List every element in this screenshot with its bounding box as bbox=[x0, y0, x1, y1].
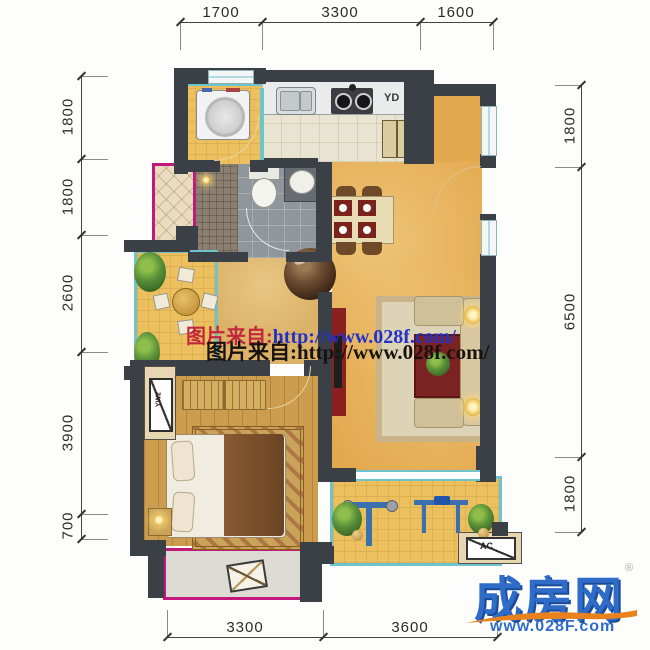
dimension-label: 1700 bbox=[191, 4, 251, 21]
dimension-label: 2600 bbox=[60, 263, 77, 323]
wall-segment bbox=[480, 84, 496, 106]
wall-segment bbox=[318, 546, 334, 564]
wall-segment bbox=[318, 468, 356, 482]
washbasin bbox=[289, 170, 315, 194]
sliding-door bbox=[356, 470, 480, 481]
wall-segment bbox=[260, 70, 408, 82]
wall-segment bbox=[176, 160, 220, 172]
dim-line-right bbox=[581, 85, 582, 532]
balcony-pot-ball bbox=[352, 530, 363, 541]
dimension-label: 1800 bbox=[562, 464, 579, 524]
wall-segment bbox=[124, 240, 190, 252]
logo-url-text: www.028F.com bbox=[490, 618, 615, 636]
dim-extension bbox=[180, 22, 181, 50]
floorplan-image: YD bbox=[0, 0, 650, 650]
stove-burner-right bbox=[355, 93, 372, 110]
dining-chair bbox=[336, 242, 356, 255]
wall-segment bbox=[174, 68, 188, 174]
exercise-bench-leg bbox=[422, 505, 426, 533]
kitchen-sink-basin2 bbox=[300, 91, 312, 111]
dim-line-top bbox=[180, 22, 493, 23]
dimension-label: 1800 bbox=[562, 96, 579, 156]
stool bbox=[153, 293, 171, 311]
toilet-bowl bbox=[251, 178, 277, 208]
washer-control-red bbox=[226, 88, 240, 92]
dimension-label: 6500 bbox=[562, 282, 579, 342]
wall-segment bbox=[260, 158, 318, 168]
stool bbox=[177, 267, 195, 284]
exercise-bench-seat bbox=[434, 496, 450, 505]
dim-line-left bbox=[81, 76, 82, 539]
dining-chair bbox=[362, 242, 382, 255]
dimension-label: 3300 bbox=[215, 619, 275, 636]
kitchen-sink-basin bbox=[280, 91, 300, 111]
window bbox=[481, 220, 497, 256]
plate bbox=[339, 204, 347, 212]
nightstand-lamp-bottom bbox=[153, 514, 165, 526]
dimension-label: 1800 bbox=[60, 167, 77, 227]
dimension-label: 1800 bbox=[60, 87, 77, 147]
wall-segment bbox=[130, 360, 144, 554]
dim-extension bbox=[81, 235, 108, 236]
leisure-plant-top bbox=[134, 252, 166, 292]
wall-segment bbox=[286, 252, 318, 262]
dim-tick bbox=[577, 527, 586, 536]
washer-control-blue bbox=[202, 88, 212, 92]
stove-dial bbox=[349, 84, 356, 91]
entry-floor bbox=[434, 84, 482, 164]
dimension-label: 3900 bbox=[60, 403, 77, 463]
plate bbox=[363, 226, 371, 234]
window bbox=[208, 70, 254, 84]
window bbox=[481, 106, 497, 156]
dim-extension bbox=[81, 539, 108, 540]
logo-registered-mark: ® bbox=[625, 562, 633, 574]
wall-segment bbox=[316, 162, 332, 262]
wardrobe bbox=[182, 380, 266, 410]
balcony-easel bbox=[226, 559, 268, 593]
flue-label: YD bbox=[384, 92, 406, 104]
stove-burner-left bbox=[335, 93, 352, 110]
plate bbox=[339, 226, 347, 234]
wall-segment bbox=[404, 70, 434, 164]
dimension-label: 3600 bbox=[380, 619, 440, 636]
plate bbox=[363, 204, 371, 212]
wall-segment bbox=[148, 548, 164, 598]
dimension-label: 700 bbox=[60, 496, 77, 556]
dimension-label: 1600 bbox=[426, 4, 486, 21]
pillow bbox=[171, 491, 196, 532]
dim-extension bbox=[81, 76, 108, 77]
round-table bbox=[172, 288, 200, 316]
exercise-bar-vertical bbox=[366, 502, 372, 546]
wall-segment bbox=[492, 522, 508, 536]
shower-head bbox=[202, 176, 210, 184]
site-logo: 成房网 ® www.028F.com bbox=[462, 558, 648, 648]
exercise-bench-leg bbox=[456, 505, 460, 533]
dim-extension bbox=[167, 610, 168, 637]
pillow bbox=[171, 440, 196, 481]
ac-label: AC bbox=[480, 541, 493, 551]
dim-extension bbox=[493, 22, 494, 50]
watermark-line2: 图片来自:http://www.028f.com/ bbox=[206, 336, 489, 366]
dim-extension bbox=[81, 159, 108, 160]
wall-segment bbox=[188, 252, 248, 262]
dim-extension bbox=[81, 352, 108, 353]
window-divider bbox=[260, 88, 264, 160]
dim-extension bbox=[262, 22, 263, 50]
dimension-label: 3300 bbox=[310, 4, 370, 21]
wall-segment bbox=[480, 154, 496, 168]
dim-extension bbox=[323, 610, 324, 637]
dim-line-bottom bbox=[167, 637, 497, 638]
sofa-seat-bottom bbox=[414, 398, 464, 428]
dim-extension bbox=[420, 22, 421, 50]
dim-extension bbox=[81, 514, 108, 515]
side-ac-label: YW2 bbox=[156, 384, 163, 416]
exercise-weight-right bbox=[386, 500, 398, 512]
bed-blanket bbox=[224, 434, 284, 536]
